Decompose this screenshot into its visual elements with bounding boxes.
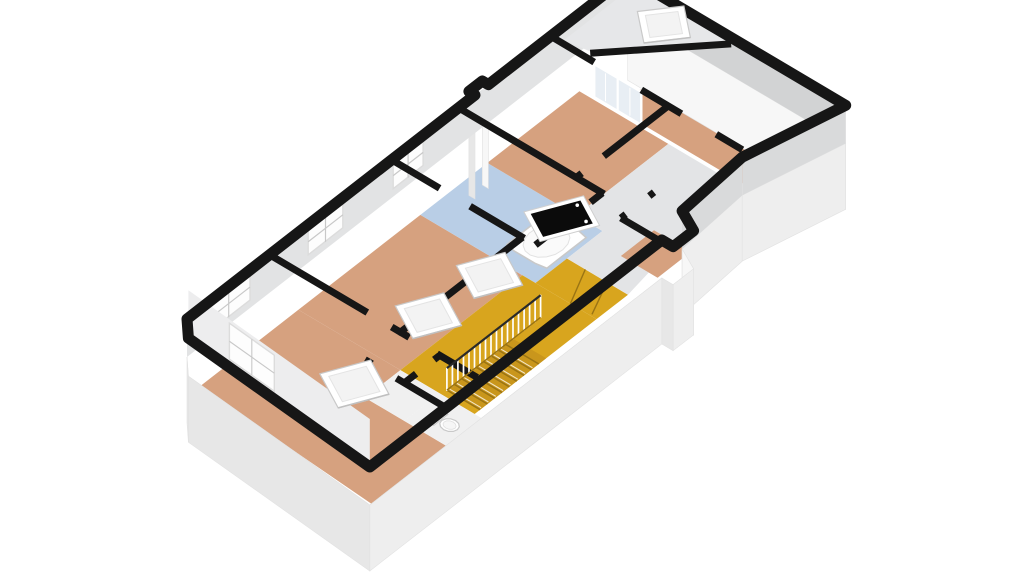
slab-side-deep [469, 129, 475, 199]
skylight-bedroom-right-slope-glass [645, 12, 682, 38]
interior-wall [576, 173, 582, 177]
slab-side-deep [662, 278, 673, 351]
floorplan-canvas [0, 0, 1024, 576]
slab-side-deep [187, 357, 188, 442]
roof-window-hinge [575, 203, 579, 207]
interior-wall [400, 332, 409, 337]
roof-window-hinge [584, 220, 588, 224]
interior-wall [649, 192, 654, 196]
floorplan-3d-render [0, 0, 1024, 576]
slab-side-deep [482, 119, 488, 189]
slab-side-deep [673, 269, 694, 351]
